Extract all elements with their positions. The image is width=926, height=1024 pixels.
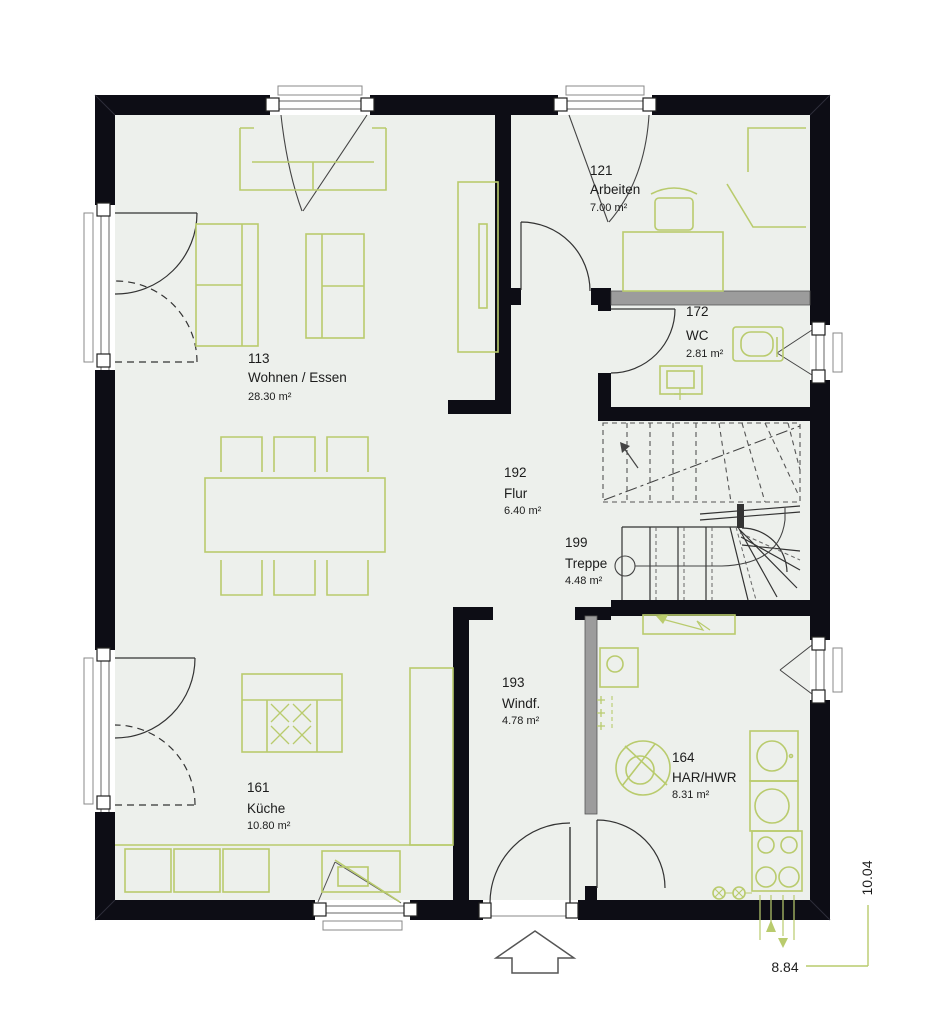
room-area: 4.48 m² bbox=[565, 575, 603, 587]
dimension-bottom: 8.84 bbox=[771, 959, 798, 975]
room-name: Flur bbox=[504, 486, 528, 501]
wall-wc-left-bottom bbox=[598, 373, 611, 409]
room-number: 199 bbox=[565, 535, 588, 550]
room-name: Küche bbox=[247, 801, 285, 816]
room-number: 121 bbox=[590, 163, 613, 178]
room-area: 8.31 m² bbox=[672, 789, 710, 801]
room-name: Wohnen / Essen bbox=[248, 370, 347, 385]
floor-plan-drawing: 10.04 8.84 113 Wohnen / Essen 28.30 m² 1… bbox=[0, 0, 926, 1024]
room-name: Treppe bbox=[565, 556, 607, 571]
wall-niche-return bbox=[448, 400, 511, 414]
floor-plan-page: 10.04 8.84 113 Wohnen / Essen 28.30 m² 1… bbox=[0, 0, 926, 1024]
room-number: 172 bbox=[686, 304, 709, 319]
room-area: 4.78 m² bbox=[502, 715, 540, 727]
room-name: Arbeiten bbox=[590, 182, 640, 197]
room-number: 164 bbox=[672, 750, 695, 765]
wall-wc-left-top bbox=[598, 291, 611, 311]
wall-windfang-har-bottom bbox=[585, 886, 597, 902]
room-number: 193 bbox=[502, 675, 525, 690]
room-area: 10.80 m² bbox=[247, 820, 291, 832]
dimension-right: 10.04 bbox=[859, 860, 875, 895]
wall-office-door-jamb bbox=[511, 288, 521, 305]
room-name: HAR/HWR bbox=[672, 770, 737, 785]
wall-windfang-left bbox=[453, 607, 469, 900]
wall-right bbox=[810, 95, 830, 920]
room-area: 7.00 m² bbox=[590, 202, 628, 214]
installation-wall-wc bbox=[611, 291, 810, 305]
wall-wc-stair bbox=[598, 407, 810, 421]
wall-stair-har bbox=[611, 600, 810, 616]
wall-bottom bbox=[95, 900, 830, 920]
wall-top bbox=[95, 95, 830, 115]
room-number: 113 bbox=[248, 351, 270, 366]
installation-wall-har bbox=[585, 616, 597, 814]
room-name: Windf. bbox=[502, 696, 540, 711]
room-number: 161 bbox=[247, 780, 270, 795]
room-area: 2.81 m² bbox=[686, 348, 724, 360]
room-area: 6.40 m² bbox=[504, 505, 542, 517]
room-number: 192 bbox=[504, 465, 527, 480]
room-area: 28.30 m² bbox=[248, 391, 292, 403]
room-name: WC bbox=[686, 328, 709, 343]
stair-newel bbox=[737, 504, 744, 528]
